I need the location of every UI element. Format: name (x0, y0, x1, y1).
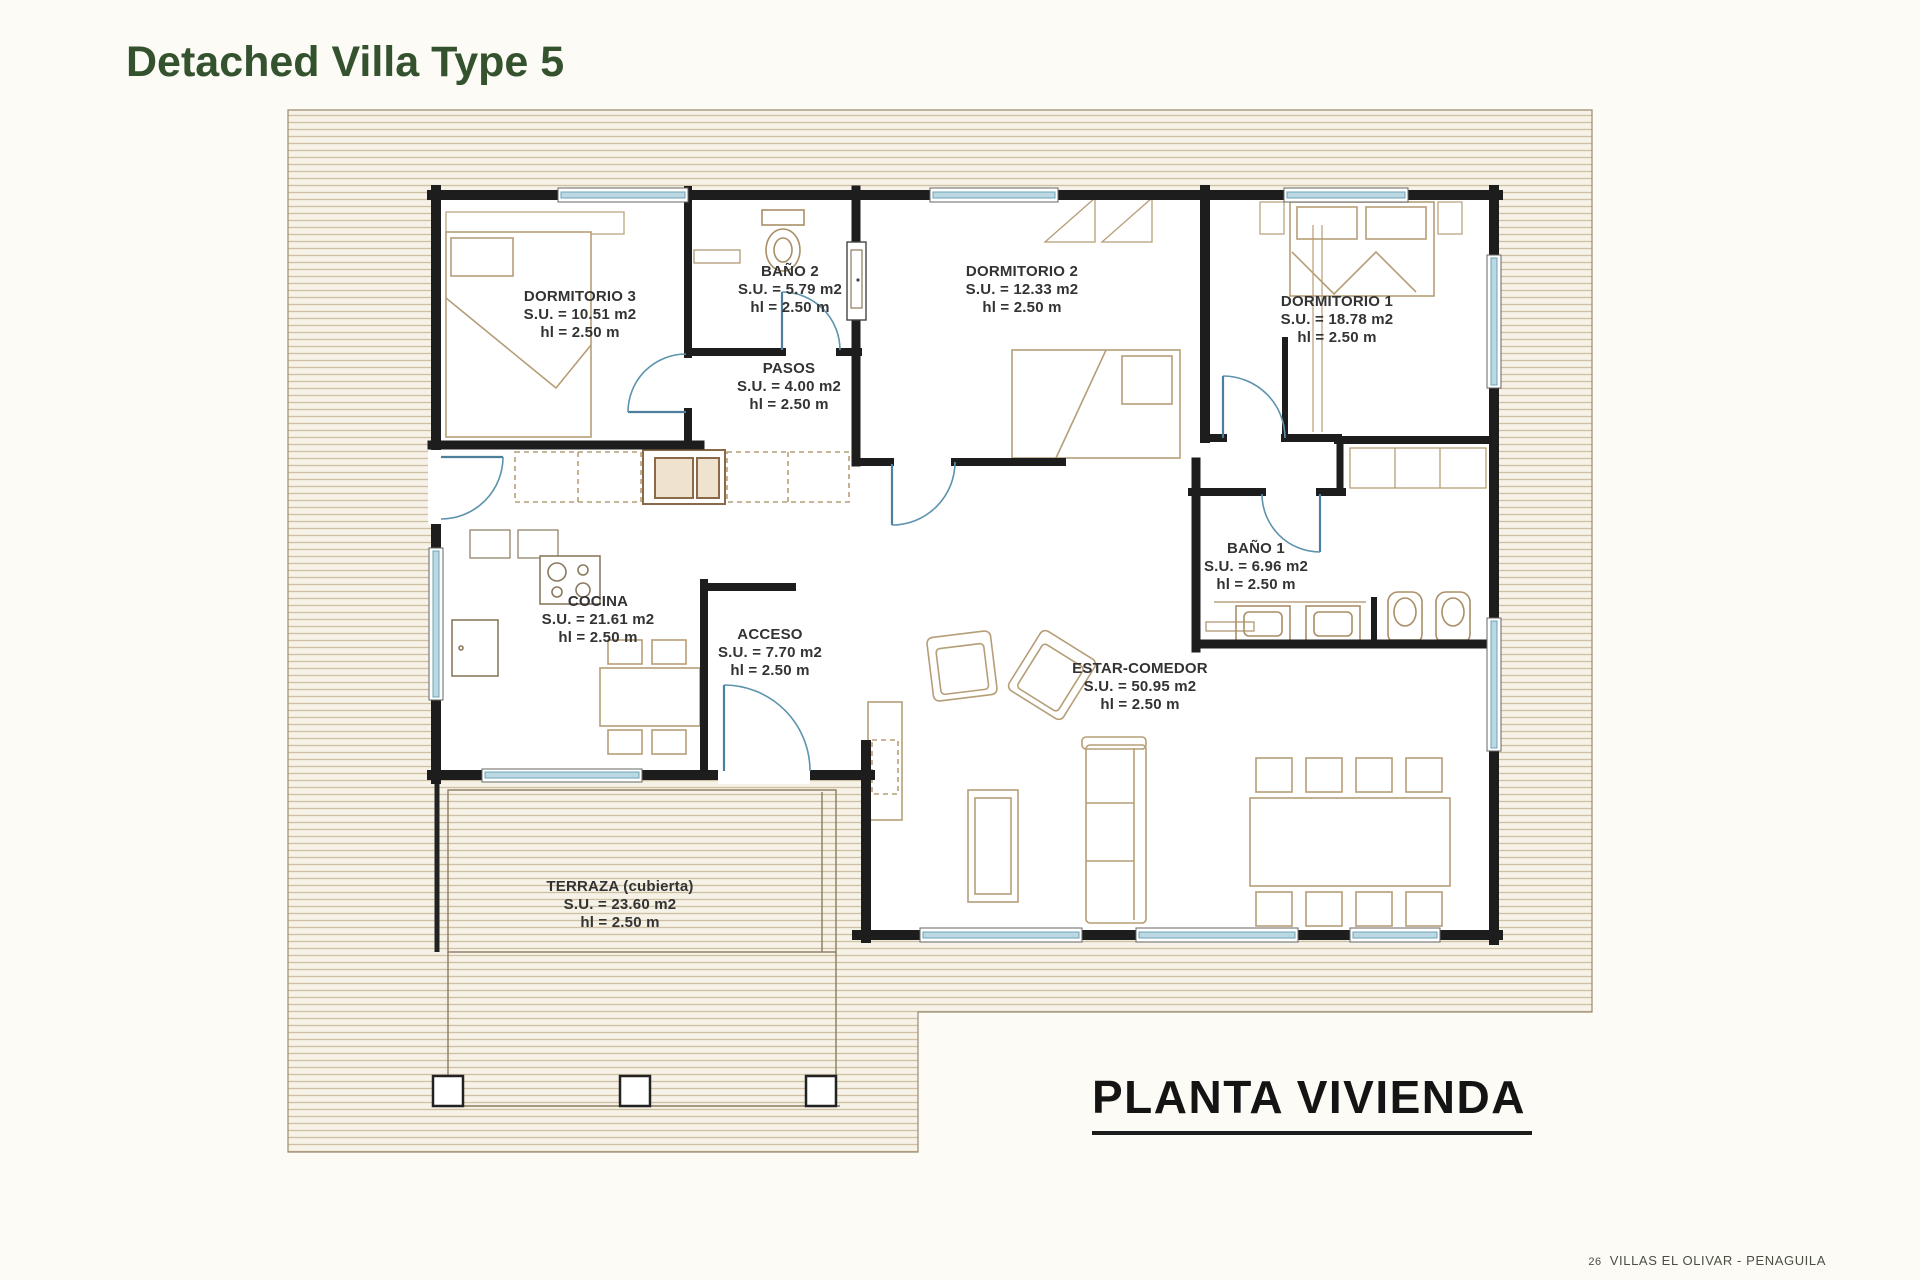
room-label-cocina: COCINA S.U. = 21.61 m2 hl = 2.50 m (542, 593, 655, 647)
room-area: S.U. = 23.60 m2 (546, 896, 693, 914)
room-height: hl = 2.50 m (1204, 576, 1308, 594)
page-footer: 26VILLAS EL OLIVAR - PENAGUILA (1588, 1253, 1826, 1268)
room-label-dormitorio-1: DORMITORIO 1 S.U. = 18.78 m2 hl = 2.50 m (1281, 293, 1394, 347)
sofa-icon (1082, 737, 1146, 923)
bed-icon-dorm1 (1260, 202, 1462, 296)
bed-icon-dorm2 (1012, 350, 1180, 458)
room-area: S.U. = 6.96 m2 (1204, 558, 1308, 576)
room-area: S.U. = 5.79 m2 (738, 281, 842, 299)
page-number: 26 (1588, 1256, 1601, 1268)
room-height: hl = 2.50 m (1072, 696, 1208, 714)
fridge-icon (452, 620, 498, 676)
sliding-door-icon-dorm2 (847, 242, 866, 320)
room-label-terraza: TERRAZA (cubierta) S.U. = 23.60 m2 hl = … (546, 878, 693, 932)
window-south-estar (920, 928, 1440, 942)
room-name: BAÑO 1 (1204, 540, 1308, 558)
kitchen-appliance-icon (643, 450, 725, 504)
room-label-dormitorio-2: DORMITORIO 2 S.U. = 12.33 m2 hl = 2.50 m (966, 263, 1079, 317)
room-area: S.U. = 10.51 m2 (524, 306, 637, 324)
room-name: DORMITORIO 1 (1281, 293, 1394, 311)
room-name: ESTAR-COMEDOR (1072, 660, 1208, 678)
window-north-dorm3 (558, 188, 688, 202)
window-west-cocina (429, 548, 443, 700)
armchair-icon (926, 630, 997, 701)
room-area: S.U. = 4.00 m2 (737, 378, 841, 396)
coffee-table-icon (968, 790, 1018, 902)
room-label-dormitorio-3: DORMITORIO 3 S.U. = 10.51 m2 hl = 2.50 m (524, 288, 637, 342)
room-area: S.U. = 18.78 m2 (1281, 311, 1394, 329)
room-area: S.U. = 50.95 m2 (1072, 678, 1208, 696)
room-name: DORMITORIO 2 (966, 263, 1079, 281)
room-name: DORMITORIO 3 (524, 288, 637, 306)
room-height: hl = 2.50 m (966, 299, 1079, 317)
floor-plan-page: Detached Villa Type 5 (0, 0, 1920, 1280)
room-height: hl = 2.50 m (542, 629, 655, 647)
room-height: hl = 2.50 m (546, 914, 693, 932)
window-north-dorm1 (1284, 188, 1408, 202)
room-label-bano-1: BAÑO 1 S.U. = 6.96 m2 hl = 2.50 m (1204, 540, 1308, 594)
room-height: hl = 2.50 m (738, 299, 842, 317)
room-area: S.U. = 21.61 m2 (542, 611, 655, 629)
room-height: hl = 2.50 m (524, 324, 637, 342)
floor-plan-drawing (0, 0, 1920, 1280)
room-name: COCINA (542, 593, 655, 611)
room-area: S.U. = 12.33 m2 (966, 281, 1079, 299)
room-height: hl = 2.50 m (737, 396, 841, 414)
room-label-estar-comedor: ESTAR-COMEDOR S.U. = 50.95 m2 hl = 2.50 … (1072, 660, 1208, 714)
project-name: VILLAS EL OLIVAR - PENAGUILA (1610, 1253, 1826, 1268)
room-height: hl = 2.50 m (1281, 329, 1394, 347)
room-name: PASOS (737, 360, 841, 378)
room-name: BAÑO 2 (738, 263, 842, 281)
room-name: TERRAZA (cubierta) (546, 878, 693, 896)
room-label-bano-2: BAÑO 2 S.U. = 5.79 m2 hl = 2.50 m (738, 263, 842, 317)
window-north-dorm2 (930, 188, 1058, 202)
room-label-acceso: ACCESO S.U. = 7.70 m2 hl = 2.50 m (718, 626, 822, 680)
window-east-dorm1 (1487, 255, 1501, 388)
room-label-pasos: PASOS S.U. = 4.00 m2 hl = 2.50 m (737, 360, 841, 414)
plan-caption: PLANTA VIVIENDA (1092, 1070, 1532, 1135)
room-name: ACCESO (718, 626, 822, 644)
room-height: hl = 2.50 m (718, 662, 822, 680)
window-east-estar (1487, 618, 1501, 751)
window-south-cocina (482, 769, 642, 782)
room-area: S.U. = 7.70 m2 (718, 644, 822, 662)
